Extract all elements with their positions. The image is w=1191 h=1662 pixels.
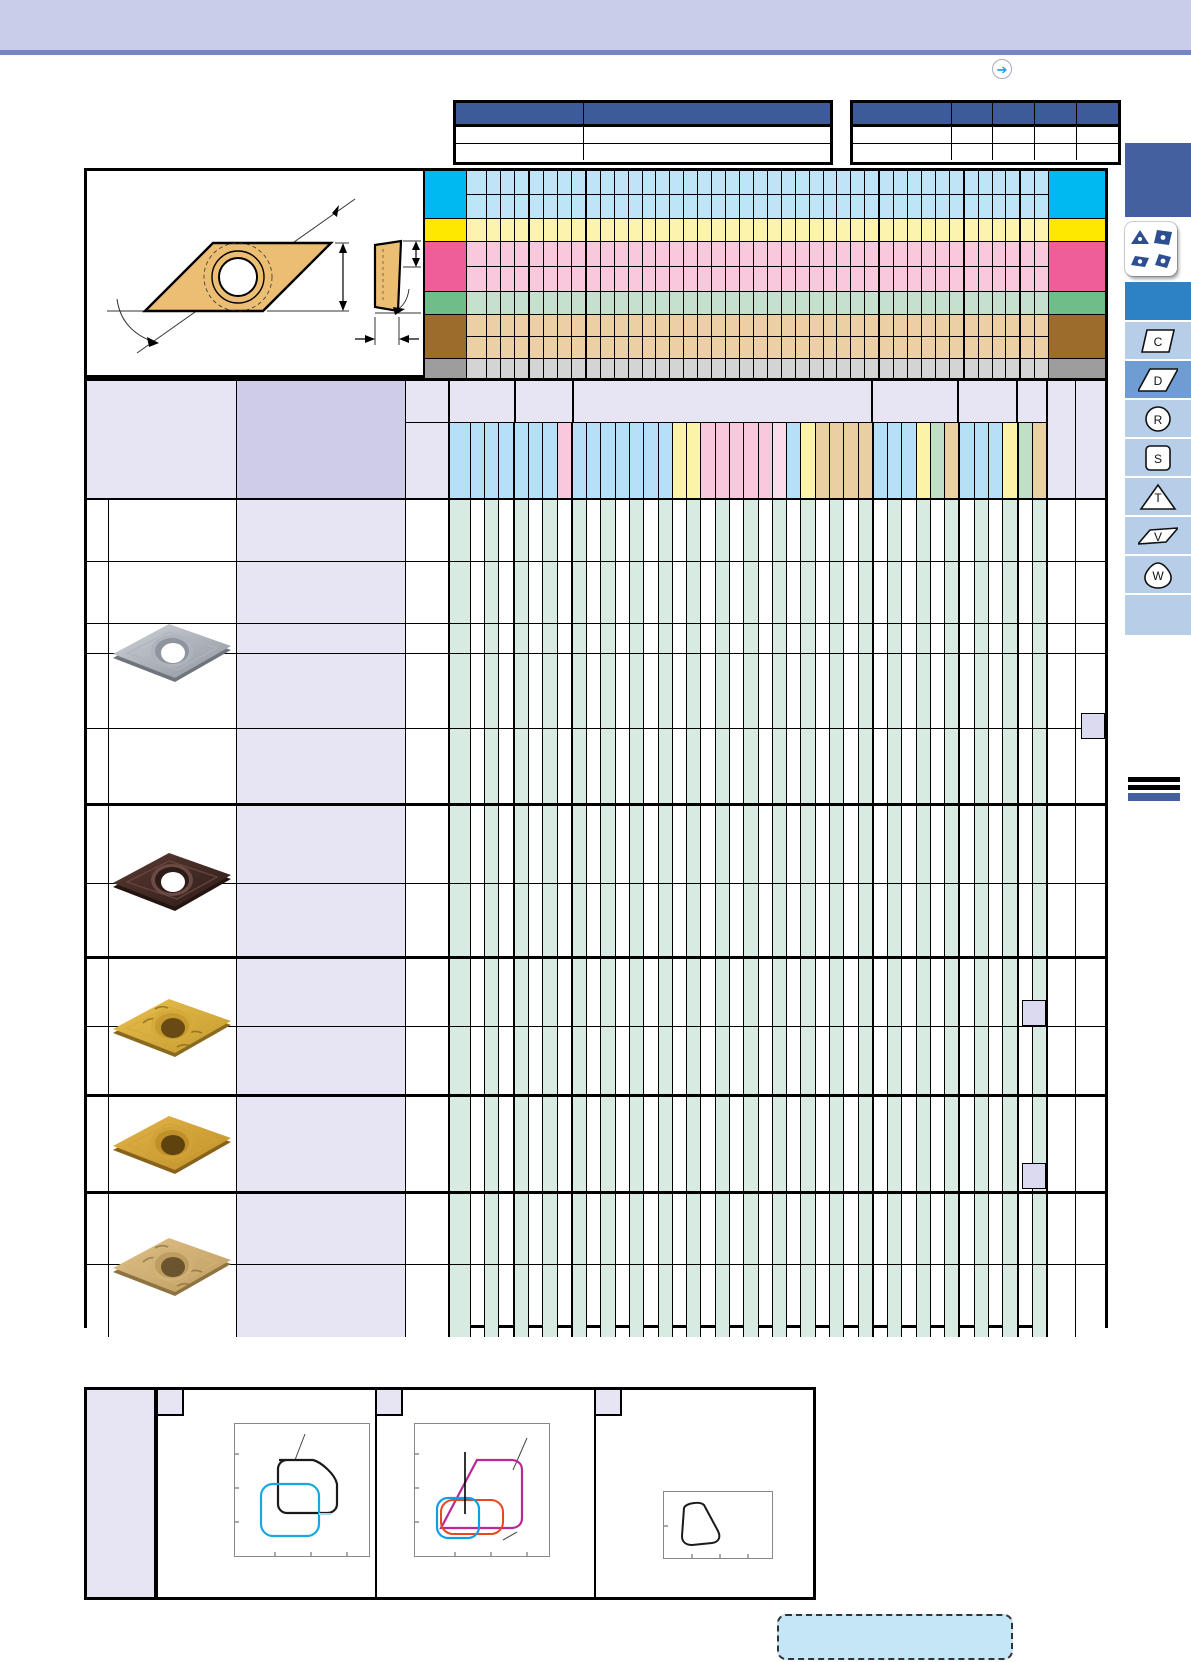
grade-strip-blue — [571, 423, 586, 498]
band-cell — [992, 359, 1006, 380]
band-cell — [739, 337, 753, 358]
grade-cell — [1017, 729, 1032, 803]
grade-cell — [571, 562, 586, 623]
band-cell — [836, 195, 850, 218]
band-cell — [697, 171, 711, 194]
grade-group-cell — [572, 381, 871, 422]
grade-cell — [643, 884, 657, 956]
grade-cell — [772, 624, 786, 653]
grade-cell — [988, 1194, 1002, 1264]
grade-cell — [988, 1027, 1002, 1094]
band-cell — [466, 337, 486, 358]
band-pink-right-block — [1048, 242, 1105, 291]
grade-cell — [643, 654, 657, 728]
note-link-box[interactable] — [777, 1614, 1013, 1660]
band-cell — [1019, 292, 1034, 314]
breaker-range-chart-1 — [234, 1423, 370, 1557]
grade-cell — [470, 654, 484, 728]
grade-cell — [872, 654, 887, 728]
grade-cell — [800, 1097, 814, 1191]
band-cell — [500, 219, 514, 241]
grade-cell — [450, 1265, 470, 1337]
band-cell — [963, 267, 978, 291]
band-cell — [1019, 315, 1034, 336]
grade-cell — [930, 1194, 944, 1264]
mini-body-cell — [951, 143, 992, 160]
band-cell — [978, 171, 992, 194]
band-cell — [823, 195, 837, 218]
grade-cell — [901, 562, 915, 623]
grade-cell — [542, 624, 556, 653]
grade-cell — [542, 654, 556, 728]
grade-cell — [958, 884, 973, 956]
grade-cell — [815, 624, 829, 653]
grade-cell — [800, 959, 814, 1026]
band-cell — [1005, 337, 1019, 358]
grade-cell — [815, 959, 829, 1026]
grade-strip-blue — [887, 423, 901, 498]
grade-cell — [988, 624, 1002, 653]
grade-cell — [758, 1027, 772, 1094]
insert-row-group-gold — [87, 1094, 1105, 1191]
grade-cell — [916, 500, 930, 561]
band-cell — [543, 359, 557, 380]
band-cell — [600, 242, 614, 266]
band-cell — [466, 242, 486, 266]
band-cell — [949, 292, 963, 314]
band-cell — [697, 292, 711, 314]
band-cell — [683, 242, 697, 266]
grade-cell — [930, 729, 944, 803]
grade-cell — [843, 1097, 857, 1191]
band-cell — [466, 195, 486, 218]
grade-cell — [815, 1265, 829, 1337]
grade-cell — [974, 624, 988, 653]
band-cell — [878, 242, 893, 266]
grade-cell — [800, 500, 814, 561]
grade-cell — [498, 500, 512, 561]
band-cell — [557, 292, 571, 314]
grade-cell — [498, 1265, 512, 1337]
grade-cell — [586, 500, 600, 561]
band-cell — [571, 219, 585, 241]
grade-cell — [686, 500, 700, 561]
grade-cell — [843, 806, 857, 883]
grade-cell — [629, 500, 643, 561]
table-row — [87, 806, 1105, 883]
grade-cell — [629, 624, 643, 653]
list-marker-icon — [1128, 777, 1180, 801]
grade-cell — [1002, 562, 1016, 623]
application-map — [84, 168, 1108, 378]
band-cell — [543, 195, 557, 218]
grade-cell — [658, 562, 672, 623]
grade-cell — [615, 884, 629, 956]
band-cell — [642, 242, 656, 266]
grade-cell — [498, 1097, 512, 1191]
grade-strip-tan — [858, 423, 872, 498]
grade-cell — [930, 806, 944, 883]
grade-cell — [470, 1265, 484, 1337]
band-cell — [543, 315, 557, 336]
band-cell — [655, 337, 669, 358]
grade-cell — [1032, 1265, 1046, 1337]
band-cell — [864, 219, 878, 241]
designation-cell — [236, 884, 405, 956]
grade-cell — [470, 806, 484, 883]
grade-cell — [815, 500, 829, 561]
shape-tab-S[interactable]: S — [1125, 439, 1191, 476]
band-cell — [949, 219, 963, 241]
band-cell — [836, 292, 850, 314]
band-cell — [1034, 267, 1048, 291]
grade-cell — [470, 884, 484, 956]
band-cell — [528, 242, 543, 266]
grade-strip-lightpink — [772, 423, 786, 498]
chipbreaker-cell-3 — [594, 1390, 813, 1597]
page-reference-box[interactable] — [1081, 713, 1105, 739]
grade-cell — [672, 500, 686, 561]
band-cell — [669, 267, 683, 291]
chipbreaker-cell-1 — [156, 1390, 375, 1597]
grade-cell — [513, 1027, 528, 1094]
grade-strip-pink — [729, 423, 743, 498]
grade-cell — [557, 500, 571, 561]
band-cell — [486, 267, 500, 291]
grade-cell — [557, 1027, 571, 1094]
grade-strip-pink — [700, 423, 714, 498]
grade-cell — [672, 1265, 686, 1337]
band-cell — [1019, 242, 1034, 266]
svg-text:T: T — [1154, 491, 1162, 505]
band-cell — [1005, 219, 1019, 241]
grade-cell — [800, 1265, 814, 1337]
grade-cell — [1002, 1194, 1016, 1264]
grade-cell — [629, 1194, 643, 1264]
mini-body-cell — [1076, 143, 1118, 160]
band-cell — [823, 337, 837, 358]
band-cell — [823, 292, 837, 314]
band-cell — [935, 219, 949, 241]
band-cell — [864, 195, 878, 218]
mini-body-cell — [951, 126, 992, 143]
grade-cell — [615, 806, 629, 883]
grade-cell — [1017, 562, 1032, 623]
grade-cell — [571, 624, 586, 653]
svg-text:W: W — [1152, 569, 1164, 583]
grade-cell — [528, 806, 542, 883]
band-cell — [907, 292, 921, 314]
grade-cell — [700, 806, 714, 883]
shape-tab-R[interactable]: R — [1125, 400, 1191, 437]
grade-strip-yellow — [672, 423, 686, 498]
band-cell — [767, 267, 781, 291]
grade-cell — [658, 654, 672, 728]
next-page-arrow-icon[interactable]: ➔ — [992, 59, 1012, 79]
band-cell — [878, 337, 893, 358]
band-cell — [725, 171, 739, 194]
mini-header-cell — [951, 103, 992, 124]
insert-photo-svg — [109, 620, 235, 684]
insert-row-group-silver — [87, 500, 1105, 803]
grade-cell — [672, 1097, 686, 1191]
chipbreaker-tab-1 — [158, 1390, 184, 1416]
band-cell — [893, 219, 907, 241]
grade-cell — [843, 562, 857, 623]
band-cell — [753, 337, 767, 358]
grade-cell — [542, 1027, 556, 1094]
band-cell — [669, 171, 683, 194]
band-cell — [514, 242, 528, 266]
grade-cell — [700, 1097, 714, 1191]
band-cell — [850, 337, 864, 358]
grade-strip-yellow — [800, 423, 814, 498]
band-pink-left-block — [425, 242, 466, 291]
band-cell — [528, 171, 543, 194]
band-cyan-right-block — [1048, 171, 1105, 218]
grade-cell — [498, 884, 512, 956]
band-cell — [907, 219, 921, 241]
grade-cell — [629, 1097, 643, 1191]
breaker-range-chart-2 — [414, 1423, 550, 1557]
grade-strip-blue — [470, 423, 484, 498]
grade-cell — [450, 562, 470, 623]
grade-cell — [600, 1097, 614, 1191]
grade-cell — [586, 884, 600, 956]
grade-cell — [988, 654, 1002, 728]
grade-cell — [1032, 654, 1046, 728]
band-cell — [753, 219, 767, 241]
band-cell — [683, 337, 697, 358]
header-fixing-cell — [405, 381, 448, 498]
grade-cell — [843, 624, 857, 653]
grade-cell — [450, 729, 470, 803]
grade-cell — [916, 562, 930, 623]
grade-cell — [944, 1265, 958, 1337]
grade-cell — [586, 959, 600, 1026]
designation-cell — [236, 654, 405, 728]
grade-cell — [743, 1194, 757, 1264]
grade-strip-tan — [829, 423, 843, 498]
grade-cell — [528, 1265, 542, 1337]
grade-cell — [658, 729, 672, 803]
grade-cell — [815, 1194, 829, 1264]
application-map-grid — [425, 171, 1105, 375]
grade-cell — [470, 1194, 484, 1264]
grade-cell — [629, 1027, 643, 1094]
band-cell — [683, 292, 697, 314]
chipbreaker-tab-2 — [377, 1390, 403, 1416]
grade-cell — [715, 959, 729, 1026]
band-cell — [500, 242, 514, 266]
grade-cell — [615, 654, 629, 728]
band-cell — [878, 315, 893, 336]
grade-cell — [843, 500, 857, 561]
grade-cell — [988, 1265, 1002, 1337]
shape-tab-V[interactable]: V — [1125, 517, 1191, 554]
grade-group-cell — [871, 381, 958, 422]
band-brown-right-block — [1048, 315, 1105, 358]
grade-cell — [450, 500, 470, 561]
grade-cell — [858, 884, 872, 956]
grade-cell — [571, 654, 586, 728]
technical-drawing-svg — [87, 171, 425, 375]
grade-strip-pink — [758, 423, 772, 498]
grade-cell — [901, 884, 915, 956]
band-cell — [836, 315, 850, 336]
mini-body-cell — [583, 126, 830, 143]
grade-cell — [829, 624, 843, 653]
band-cell — [850, 315, 864, 336]
grade-cell — [498, 654, 512, 728]
grade-cell — [1032, 884, 1046, 956]
grade-cell — [974, 1194, 988, 1264]
band-cell — [585, 359, 600, 380]
grade-cell — [930, 1027, 944, 1094]
band-cell — [642, 337, 656, 358]
chipbreaker-tab-3 — [596, 1390, 622, 1416]
grade-cell — [944, 654, 958, 728]
grade-cell — [758, 1194, 772, 1264]
band-cell — [992, 267, 1006, 291]
grade-cell — [930, 1265, 944, 1337]
band-cell — [697, 315, 711, 336]
band-cell — [725, 359, 739, 380]
page-reference-box[interactable] — [1022, 1000, 1046, 1026]
grade-cell — [470, 729, 484, 803]
band-cell — [921, 171, 935, 194]
grade-cell — [571, 1265, 586, 1337]
band-cell — [585, 242, 600, 266]
grade-strip-blue — [600, 423, 614, 498]
grade-cell — [916, 1265, 930, 1337]
grade-cell — [786, 884, 800, 956]
grade-cell — [786, 654, 800, 728]
chipbreaker-panel-side — [87, 1390, 156, 1597]
grade-cell — [586, 1194, 600, 1264]
band-cell — [878, 219, 893, 241]
grade-cell — [672, 884, 686, 956]
band-cell — [823, 219, 837, 241]
shape-tab-W[interactable]: W — [1125, 556, 1191, 593]
band-cell — [935, 171, 949, 194]
table-header — [87, 381, 1105, 500]
band-cell — [697, 195, 711, 218]
grade-cell — [1017, 1027, 1032, 1094]
page-reference-box[interactable] — [1022, 1163, 1046, 1189]
band-cell — [907, 195, 921, 218]
grade-cell — [901, 1265, 915, 1337]
grade-cell — [930, 624, 944, 653]
band-cell — [514, 292, 528, 314]
grade-cell — [542, 1265, 556, 1337]
grade-cell — [450, 1027, 470, 1094]
grade-cell — [786, 729, 800, 803]
grade-cell — [715, 729, 729, 803]
grade-cell — [930, 884, 944, 956]
band-cell — [466, 292, 486, 314]
grade-cell — [528, 959, 542, 1026]
grade-cell — [743, 1097, 757, 1191]
designation-cell — [236, 624, 405, 653]
band-cell — [978, 267, 992, 291]
grade-cell — [600, 654, 614, 728]
shape-tab-D[interactable]: D — [1125, 361, 1191, 398]
grade-cell — [484, 1194, 498, 1264]
band-cell — [864, 359, 878, 380]
grade-cell — [715, 1194, 729, 1264]
band-cell — [823, 171, 837, 194]
shape-tab-T[interactable]: T — [1125, 478, 1191, 515]
grade-cell — [901, 1027, 915, 1094]
band-cell — [711, 337, 725, 358]
grade-cell — [715, 1265, 729, 1337]
grade-cell — [916, 806, 930, 883]
grade-cell — [815, 1027, 829, 1094]
band-cell — [683, 315, 697, 336]
grade-cell — [571, 500, 586, 561]
band-green-right-block — [1048, 292, 1105, 314]
grade-cell — [944, 500, 958, 561]
grade-cell — [658, 500, 672, 561]
grade-cell — [1032, 729, 1046, 803]
band-cell — [614, 337, 628, 358]
grade-cell — [944, 624, 958, 653]
grade-cell — [887, 1265, 901, 1337]
header-shape-cell — [87, 381, 236, 498]
grade-cell — [484, 884, 498, 956]
grade-cell — [800, 654, 814, 728]
grade-cell — [872, 1097, 887, 1191]
grade-cell — [800, 624, 814, 653]
grade-cell — [686, 624, 700, 653]
band-cell — [739, 195, 753, 218]
band-cell — [753, 315, 767, 336]
band-cell — [571, 267, 585, 291]
band-cell — [628, 267, 642, 291]
grade-cell — [1002, 884, 1016, 956]
grade-cell — [542, 562, 556, 623]
grade-cell — [843, 1265, 857, 1337]
grade-cell — [1017, 1194, 1032, 1264]
grade-cell — [858, 654, 872, 728]
grade-strip-yellow — [916, 423, 930, 498]
grade-cell — [528, 1027, 542, 1094]
band-cell — [655, 219, 669, 241]
grade-cell — [513, 1097, 528, 1191]
grade-cell — [743, 884, 757, 956]
grade-cell — [829, 1027, 843, 1094]
shape-tab-C[interactable]: C — [1125, 322, 1191, 359]
insert-photo-svg — [109, 1112, 235, 1176]
insert-shapes-icon[interactable] — [1125, 222, 1177, 276]
grade-cell — [729, 562, 743, 623]
grade-cell — [715, 1027, 729, 1094]
grade-cell — [450, 884, 470, 956]
grade-cell — [571, 884, 586, 956]
band-cell — [725, 267, 739, 291]
grade-cell — [829, 500, 843, 561]
band-cell — [753, 267, 767, 291]
grade-cell — [1002, 959, 1016, 1026]
grade-cell — [615, 1265, 629, 1337]
grade-cell — [513, 959, 528, 1026]
grade-cell — [715, 654, 729, 728]
grade-cell — [615, 1097, 629, 1191]
band-cell — [767, 359, 781, 380]
band-cell — [614, 267, 628, 291]
mini-header-cell — [456, 103, 583, 124]
